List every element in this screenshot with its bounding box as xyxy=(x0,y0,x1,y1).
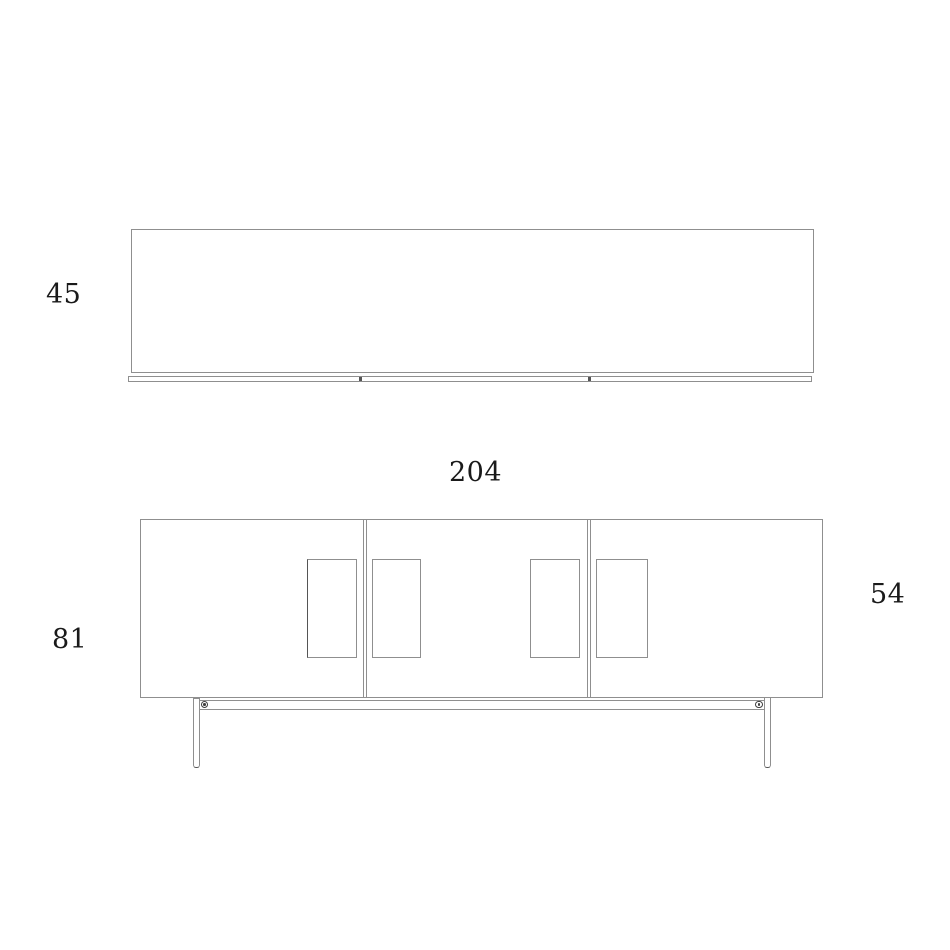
right-leg-screw xyxy=(755,701,763,709)
dimension-width-label: 204 xyxy=(449,459,502,487)
base-rail xyxy=(198,700,766,710)
door-gap-left xyxy=(363,520,368,697)
dimension-depth-label: 45 xyxy=(46,281,81,309)
dimension-overall-height-label: 81 xyxy=(52,626,87,654)
door-handle-1 xyxy=(307,559,357,658)
plan-view-front-edge-strip xyxy=(128,376,812,382)
plan-strip-divider-right xyxy=(588,377,591,381)
right-leg xyxy=(764,697,771,768)
left-screw-center-dot xyxy=(203,703,206,706)
right-screw-center-dot xyxy=(758,703,761,706)
dimension-carcass-height-label: 54 xyxy=(870,581,905,609)
furniture-dimension-drawing: 45 204 81 54 xyxy=(0,0,950,950)
door-handle-2 xyxy=(372,559,422,658)
plan-strip-divider-left xyxy=(359,377,362,381)
front-view-carcass xyxy=(140,519,823,698)
left-leg xyxy=(193,698,200,768)
door-gap-right xyxy=(587,520,592,697)
door-handle-4 xyxy=(596,559,648,658)
door-handle-3 xyxy=(530,559,580,658)
plan-view-outline xyxy=(131,229,814,373)
